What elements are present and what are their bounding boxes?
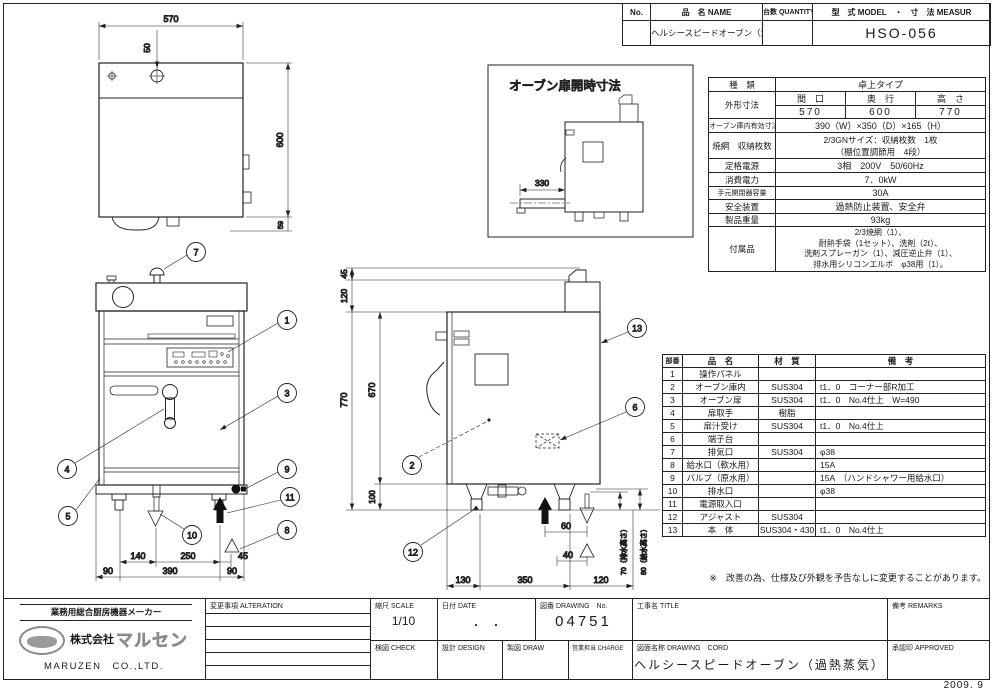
svg-text:8: 8: [284, 526, 289, 536]
inset-title: オーブン扉開時寸法: [509, 78, 621, 93]
header-no-label: No.: [623, 4, 651, 21]
header-no-value: [623, 21, 651, 46]
table-row: 9バルブ（原水用）15A （ハンドシャワー用給水口）: [663, 472, 986, 485]
drawing-sheet: 570 50 600 59: [0, 0, 994, 692]
dim-350: 350: [517, 575, 532, 585]
spec-accessories-label: 付属品: [709, 227, 776, 272]
dim-top-width: 570: [163, 14, 178, 24]
balloon-4: 4: [58, 460, 77, 479]
alteration-label: 変更事項 ALTERATION: [210, 601, 283, 611]
spec-safety-label: 安全装置: [709, 200, 776, 214]
svg-text:1: 1: [284, 316, 289, 326]
dim-140: 140: [130, 551, 145, 561]
charge-label: 営業担当 CHARGE: [572, 643, 623, 652]
drawing-no-value: 04751: [535, 613, 632, 630]
balloon-12: 12: [404, 543, 423, 562]
dim-top-depth: 600: [275, 132, 285, 147]
spec-cavity-label: オーブン庫内有効寸法: [709, 119, 776, 133]
parts-name-header: 品 名: [683, 355, 759, 368]
svg-text:13: 13: [632, 324, 642, 334]
company-name-prefix: 株式会社: [70, 631, 114, 647]
header-qty-value: [763, 21, 813, 46]
spec-rack-value: 2/3GNサイズ：収納枚数 1枚（棚位置調節用 4段）: [776, 133, 986, 159]
spec-cavity-value: 390（W）×350（D）×165（H）: [776, 119, 986, 133]
svg-text:4: 4: [64, 465, 69, 475]
spec-breaker-label: 手元開閉器容量: [709, 187, 776, 200]
svg-text:10: 10: [187, 531, 197, 541]
svg-text:3: 3: [284, 389, 289, 399]
balloon-13: 13: [628, 319, 647, 338]
product-name: ヘルシースピードオーブン（過熱水蒸気）: [651, 21, 763, 46]
spec-rack-label: 焼網 収納枚数: [709, 133, 776, 159]
company-tagline: 業務用総合厨房機器メーカー: [20, 604, 192, 621]
balloon-3: 3: [278, 384, 297, 403]
table-row: 4扉取手樹脂: [663, 407, 986, 420]
dim-670: 670: [367, 382, 377, 397]
svg-text:2: 2: [409, 461, 414, 471]
balloon-8: 8: [278, 521, 297, 540]
dim-130: 130: [455, 575, 470, 585]
scale-value: 1/10: [370, 614, 437, 628]
dim-60: 60: [561, 521, 571, 531]
spec-outer-label: 外形寸法: [709, 92, 776, 119]
balloon-9: 9: [278, 460, 297, 479]
approved-label: 承認印 APPROVED: [892, 643, 954, 653]
table-row: 12アジャストSUS304: [663, 511, 986, 524]
project-title-label: 工事名 TITLE: [637, 601, 679, 611]
parts-remark-header: 備 考: [816, 355, 986, 368]
svg-text:6: 6: [632, 403, 637, 413]
svg-text:11: 11: [285, 493, 294, 503]
header-qty-label: 台数 QUANTITY: [763, 4, 813, 21]
dim-supply-height: 80（給水高さ）: [639, 525, 648, 575]
table-row: 1操作パネル: [663, 368, 986, 381]
issue-date: 2009. 9: [944, 680, 984, 691]
svg-text:5: 5: [65, 512, 70, 522]
company-name-en: MARUZEN CO.,LTD.: [44, 658, 164, 672]
check-label: 検図 CHECK: [375, 643, 415, 653]
balloon-1: 1: [278, 311, 297, 330]
dim-120b: 120: [593, 575, 608, 585]
dim-770: 770: [339, 392, 349, 407]
title-header-table: No. 品 名 NAME 台数 QUANTITY 型 式 MODEL ・ 寸 法…: [622, 3, 991, 46]
dim-250: 250: [180, 551, 195, 561]
spec-type-value: 卓上タイプ: [776, 78, 986, 92]
balloon-10: 10: [183, 526, 202, 545]
design-label: 設計 DESIGN: [442, 643, 485, 653]
dim-back-offset: 59: [276, 221, 285, 229]
table-row: 8給水口（軟水用）15A: [663, 459, 986, 472]
spec-weight-value: 93kg: [776, 214, 986, 227]
spec-weight-label: 製品重量: [709, 214, 776, 227]
dim-hole-offset: 50: [142, 43, 152, 53]
spec-safety-value: 過熱防止装置、安全弁: [776, 200, 986, 214]
header-name-label: 品 名 NAME: [651, 4, 763, 21]
spec-consumption-label: 消費電力: [709, 173, 776, 187]
dim-sv-120: 120: [339, 289, 349, 303]
table-row: 13本 体SUS304・430t1．0 No.4仕上: [663, 524, 986, 537]
side-view: 45 120 770 670 100 60 40 130 350 120: [339, 268, 660, 590]
dim-40: 40: [563, 550, 573, 560]
balloon-2: 2: [403, 456, 422, 475]
table-row: 5扉汁受けSUS304t1．0 No.4仕上: [663, 420, 986, 433]
spec-breaker-value: 30A: [776, 187, 986, 200]
spec-consumption-value: 7．0kW: [776, 173, 986, 187]
parts-no-header: 部番: [663, 355, 683, 368]
spec-power-value: 3相 200V 50/60Hz: [776, 159, 986, 173]
dim-sv-45: 45: [339, 269, 349, 279]
header-model-label: 型 式 MODEL ・ 寸 法 MEASUR: [813, 4, 991, 21]
draw-label: 製図 DRAW: [507, 643, 544, 653]
top-view: 570 50 600 59: [99, 14, 292, 231]
table-row: 3オーブン扉SUS304t1．0 No.4仕上 W=490: [663, 394, 986, 407]
svg-text:9: 9: [284, 465, 289, 475]
maruzen-logo-icon: [19, 626, 65, 655]
svg-text:12: 12: [408, 548, 418, 558]
dim-390: 390: [162, 566, 177, 576]
dim-100: 100: [368, 490, 377, 504]
table-row: 7排気口SUS304φ38: [663, 446, 986, 459]
balloon-11: 11: [281, 488, 300, 507]
drawing-name-label: 図面名称 DRAWING CORD: [637, 643, 728, 653]
balloon-5: 5: [59, 507, 78, 526]
spec-width-value: 570: [776, 106, 846, 119]
spec-depth-label: 奥 行: [846, 92, 916, 106]
date-value: ・ ・: [437, 617, 535, 632]
dim-90-left: 90: [103, 566, 113, 576]
drawing-name-value: ヘルシースピードオーブン（過熱蒸気）: [632, 656, 887, 673]
balloon-6: 6: [626, 398, 645, 417]
parts-material-header: 材 質: [759, 355, 816, 368]
spec-height-label: 高 さ: [916, 92, 986, 106]
scale-label: 縮尺 SCALE: [375, 601, 414, 611]
table-row: 11電源取入口: [663, 498, 986, 511]
spec-width-label: 間 口: [776, 92, 846, 106]
balloon-7: 7: [187, 243, 206, 262]
table-row: 6端子台: [663, 433, 986, 446]
dim-45: 45: [238, 551, 248, 561]
spec-depth-value: 600: [846, 106, 916, 119]
door-open-inset: オーブン扉開時寸法 330: [488, 65, 693, 237]
spec-height-value: 770: [916, 106, 986, 119]
spec-power-label: 定格電源: [709, 159, 776, 173]
table-row: 2オーブン庫内SUS304t1．0 コーナー部R加工: [663, 381, 986, 394]
dim-drain-height: 70（排水高さ）: [619, 525, 628, 575]
model-number: HSO-056: [813, 21, 991, 46]
parts-table: 部番 品 名 材 質 備 考 1操作パネル 2オーブン庫内SUS304t1．0 …: [662, 354, 986, 537]
date-label: 日付 DATE: [442, 601, 476, 611]
drawing-no-label: 図番 DRAWING No.: [540, 601, 607, 611]
svg-text:7: 7: [193, 248, 198, 258]
table-row: 10排水口φ38: [663, 485, 986, 498]
remarks-label: 備考 REMARKS: [892, 601, 943, 611]
dim-330: 330: [535, 178, 549, 188]
spec-type-label: 種 類: [709, 78, 776, 92]
front-view: 140 250 45 90 390 90: [96, 268, 248, 581]
dim-90-right: 90: [227, 566, 237, 576]
spec-accessories-value: 2/3焼網（1）、耐熱手袋（1セット）、洗剤（2ℓ）、洗剤スプレーガン（1）、減…: [776, 227, 986, 272]
company-name-brand: マルセン: [116, 626, 188, 651]
spec-table: 種 類 卓上タイプ 外形寸法 間 口 奥 行 高 さ 570 600 770 オ…: [708, 77, 986, 272]
change-notice: ※ 改善の為、仕様及び外観を予告なしに変更することがあります。: [660, 571, 986, 584]
